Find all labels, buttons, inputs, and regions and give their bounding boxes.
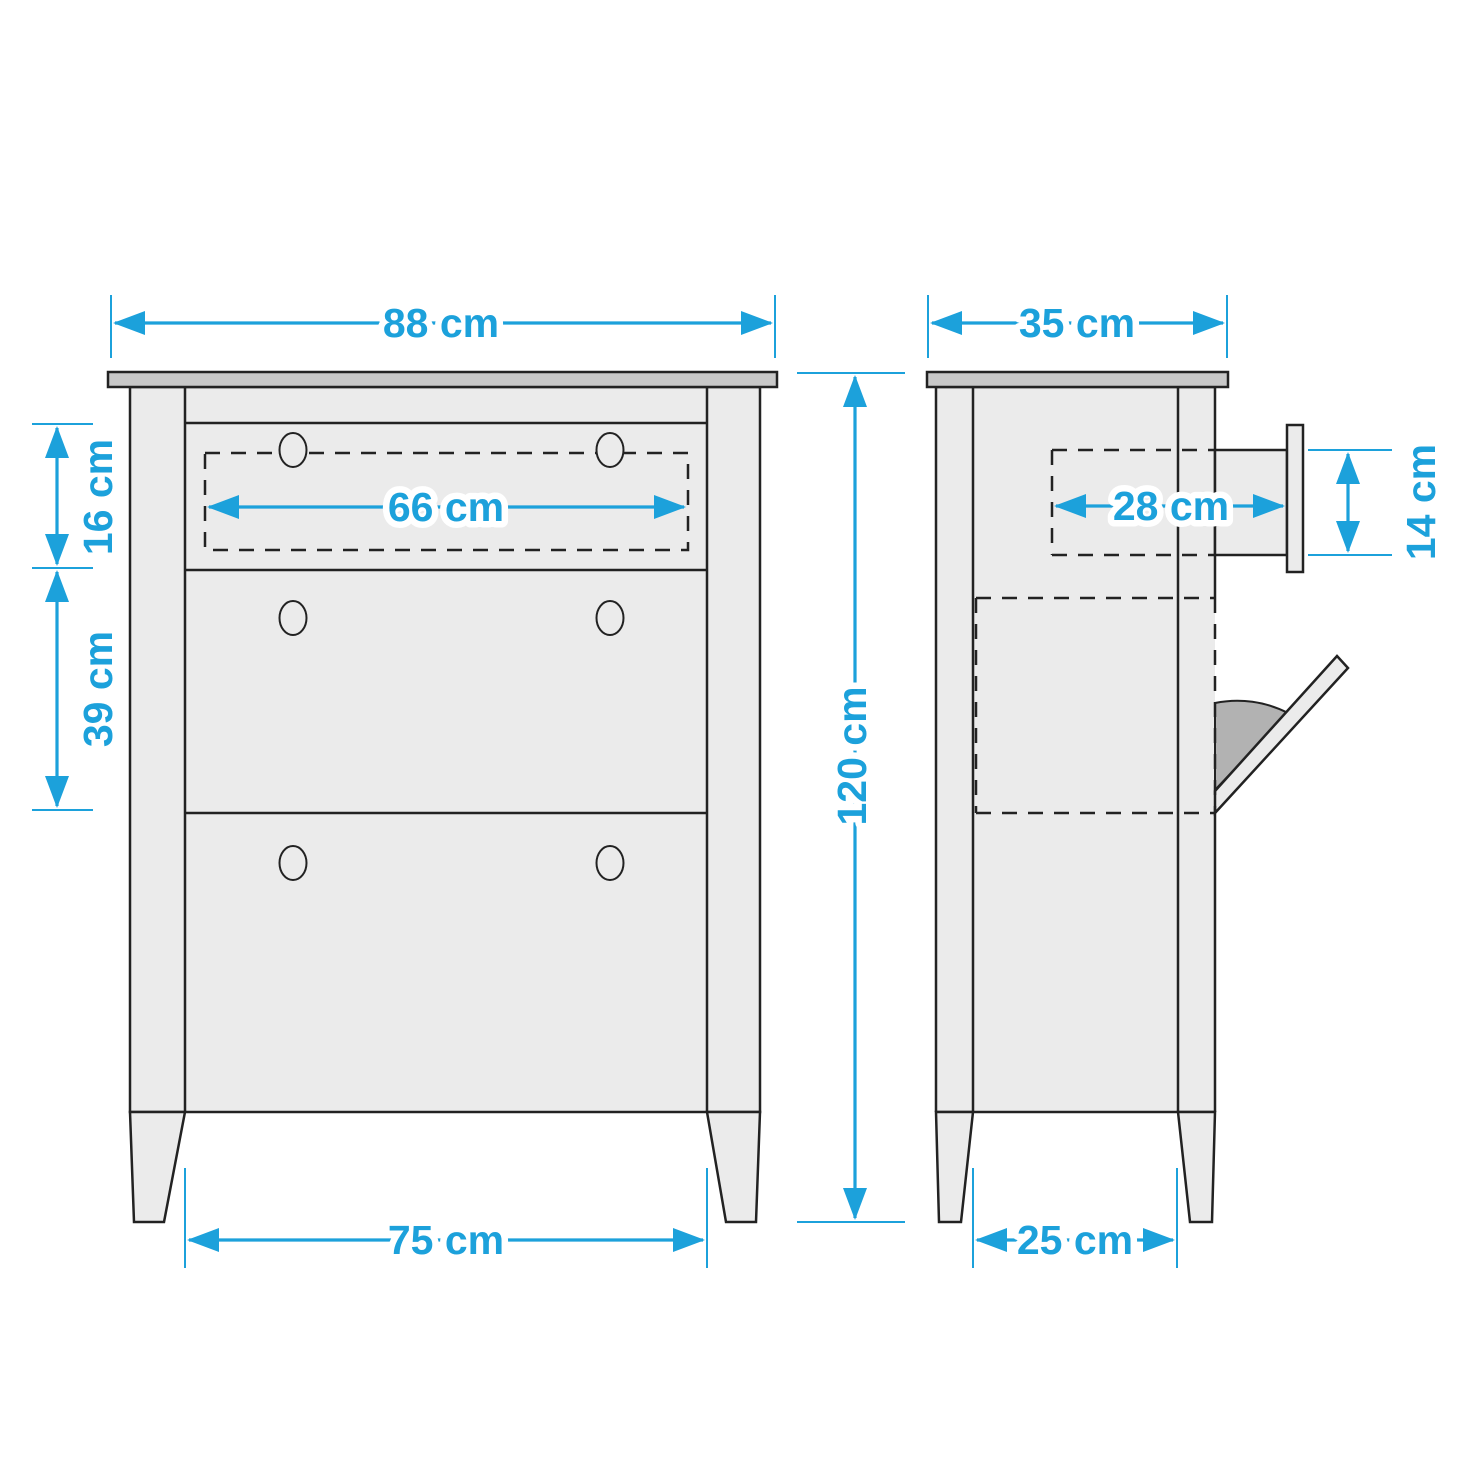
front-tabletop bbox=[108, 372, 777, 387]
dimension-label: 88 cm bbox=[383, 300, 499, 346]
dimension-label: 16 cm bbox=[75, 439, 121, 555]
dimension-label: 75 cm bbox=[388, 1217, 504, 1263]
bottom-flap-knob-right bbox=[597, 846, 624, 880]
dimension-drawer-side-height: 14 cm bbox=[1308, 444, 1444, 560]
diagram-svg: 88 cm 35 cm 66 cm 16 cm 39 cm 120 cm bbox=[0, 0, 1464, 1464]
dimension-label: 25 cm bbox=[1017, 1217, 1133, 1263]
dimension-label: 28 cm bbox=[1113, 483, 1229, 529]
side-front-leg bbox=[1178, 1112, 1215, 1222]
front-left-leg bbox=[130, 1112, 185, 1222]
middle-flap-knob-right bbox=[597, 601, 624, 635]
side-tabletop bbox=[927, 372, 1228, 387]
side-back-leg bbox=[936, 1112, 973, 1222]
dimension-label: 14 cm bbox=[1398, 444, 1444, 560]
middle-flap-knob-left bbox=[280, 601, 307, 635]
bottom-flap-knob-left bbox=[280, 846, 307, 880]
front-right-leg bbox=[707, 1112, 760, 1222]
dimension-side-leg-spacing: 25 cm bbox=[973, 1168, 1177, 1268]
dimension-label: 39 cm bbox=[75, 631, 121, 747]
drawer-knob-right bbox=[597, 433, 624, 467]
dimension-cabinet-depth: 35 cm bbox=[928, 295, 1227, 358]
pulled-out-drawer-front-panel bbox=[1287, 425, 1303, 572]
dimension-flap-compartment-height: 39 cm bbox=[32, 572, 121, 810]
dimension-front-leg-spacing: 75 cm bbox=[185, 1168, 707, 1268]
dimension-cabinet-height: 120 cm bbox=[797, 373, 905, 1222]
dimension-ticks bbox=[1308, 450, 1392, 555]
dimension-cabinet-width: 88 cm bbox=[111, 295, 775, 358]
dimension-label: 35 cm bbox=[1019, 300, 1135, 346]
dimension-top-drawer-height: 16 cm bbox=[32, 424, 121, 568]
dimension-label: 66 cm bbox=[388, 484, 504, 530]
drawer-knob-left bbox=[280, 433, 307, 467]
dimension-label: 120 cm bbox=[829, 686, 875, 825]
shoe-cabinet-dimension-diagram: 88 cm 35 cm 66 cm 16 cm 39 cm 120 cm bbox=[0, 0, 1464, 1464]
